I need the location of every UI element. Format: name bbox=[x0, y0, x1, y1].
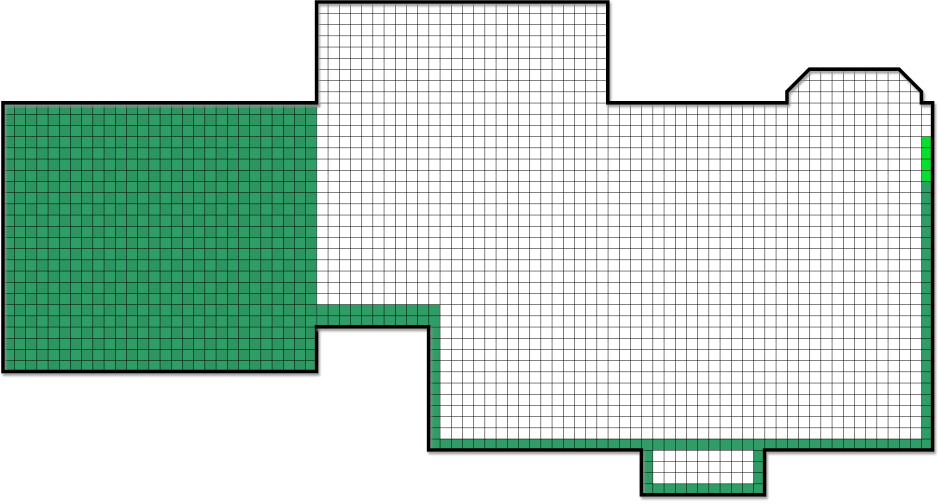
map-viewport bbox=[0, 0, 939, 504]
left-room-area-grid-lines bbox=[3, 103, 317, 372]
grid-territory-map bbox=[0, 0, 939, 504]
